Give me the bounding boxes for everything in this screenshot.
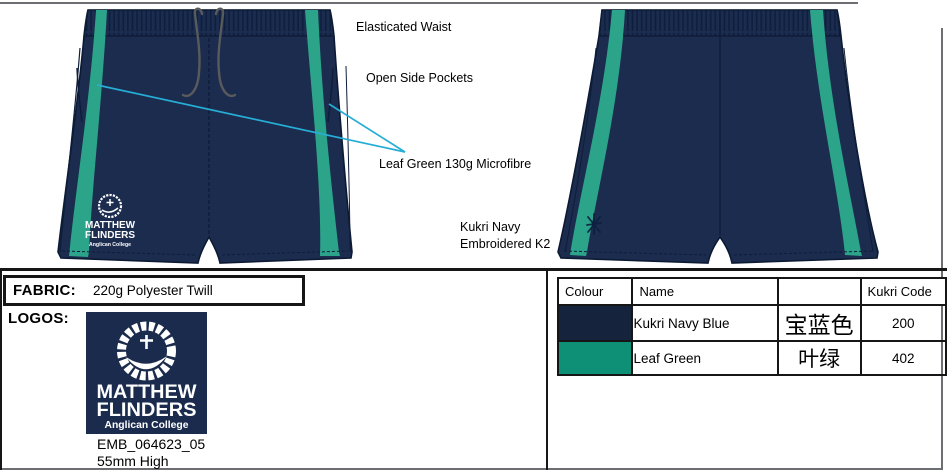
fabric-label: FABRIC: bbox=[6, 282, 76, 299]
embroidery-note: EMB_064623_05 55mm High bbox=[97, 436, 205, 469]
section-divider-horizontal bbox=[0, 268, 947, 271]
logos-label: LOGOS: bbox=[8, 310, 69, 327]
section-divider-vertical bbox=[546, 269, 548, 470]
fabric-value: 220g Polyester Twill bbox=[93, 283, 213, 298]
callout-line-left-stripe bbox=[97, 85, 405, 152]
table-row: Leaf Green 叶绿 402 bbox=[558, 341, 946, 375]
colour-kukri-code: 402 bbox=[861, 341, 946, 375]
callout-line-right-stripe bbox=[329, 104, 405, 152]
frame-left-line bbox=[0, 269, 2, 470]
badge-line2: FLINDERS bbox=[97, 400, 197, 421]
swatch-kukri-navy bbox=[558, 305, 632, 341]
annotation-kukri-navy-line2: Embroidered K2 bbox=[460, 236, 550, 253]
spec-sheet: MATTHEW FLINDERS Anglican College bbox=[0, 0, 947, 474]
colour-chinese-name: 宝蓝色 bbox=[778, 305, 861, 341]
table-row: Kukri Navy Blue 宝蓝色 200 bbox=[558, 305, 946, 341]
college-logo-badge: MATTHEW FLINDERS Anglican College bbox=[86, 312, 207, 434]
annotation-open-side-pockets: Open Side Pockets bbox=[366, 71, 473, 85]
colour-table-header-row: Colour Name Kukri Code bbox=[558, 278, 946, 305]
embroidery-height: 55mm High bbox=[97, 453, 205, 470]
header-colour: Colour bbox=[558, 278, 632, 305]
embroidery-code: EMB_064623_05 bbox=[97, 436, 205, 453]
fabric-box: FABRIC: 220g Polyester Twill bbox=[3, 275, 305, 306]
header-kukri-code: Kukri Code bbox=[861, 278, 946, 305]
header-chinese bbox=[778, 278, 861, 305]
header-name: Name bbox=[632, 278, 777, 305]
badge-line3: Anglican College bbox=[105, 420, 189, 431]
swatch-leaf-green bbox=[558, 341, 632, 375]
annotation-leaf-green-fabric: Leaf Green 130g Microfibre bbox=[379, 157, 531, 171]
colour-table: Colour Name Kukri Code Kukri Navy Blue 宝… bbox=[557, 277, 947, 376]
colour-kukri-code: 200 bbox=[861, 305, 946, 341]
colour-name: Kukri Navy Blue bbox=[632, 305, 777, 341]
annotation-kukri-navy-embroidered: Kukri Navy Embroidered K2 bbox=[460, 219, 550, 252]
colour-name: Leaf Green bbox=[632, 341, 777, 375]
colour-chinese-name: 叶绿 bbox=[778, 341, 861, 375]
annotation-elasticated-waist: Elasticated Waist bbox=[356, 20, 451, 34]
annotation-kukri-navy-line1: Kukri Navy bbox=[460, 219, 550, 236]
